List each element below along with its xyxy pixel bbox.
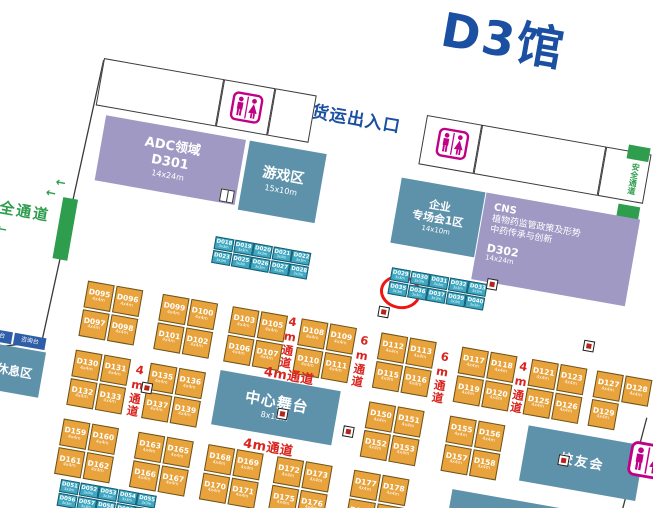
booth-D108: D1084x4m: [297, 318, 328, 349]
booth-D166: D1664x4m: [129, 460, 160, 491]
booth-D156: D1564x4m: [474, 421, 505, 452]
booth-D112: D1124x4m: [377, 332, 408, 363]
booth-group: D0994x4mD1004x4mD1014x4mD1024x4m: [153, 294, 219, 360]
booth-D132: D1324x4m: [66, 378, 97, 409]
booth-D117: D1174x4m: [458, 347, 489, 378]
booth-group: D1354x4mD1364x4mD1374x4mD1394x4m: [141, 363, 207, 429]
booth-D102: D1024x4m: [181, 327, 212, 358]
booth-D175: D1754x4m: [268, 484, 299, 508]
booth-id: D058: [97, 502, 115, 508]
booth-D123: D1234x4m: [556, 364, 587, 395]
room-top-small: [267, 88, 317, 143]
booth-D109: D1094x4m: [325, 323, 356, 354]
booth-D177: D1774x4m: [350, 470, 381, 501]
booth-D115: D1154x4m: [372, 360, 403, 391]
booth-D099: D0994x4m: [158, 294, 189, 325]
booth-D152: D1524x4m: [360, 429, 391, 460]
booth-D151: D1514x4m: [393, 406, 424, 437]
booth-group: D1504x4mD1514x4mD1524x4mD1534x4m: [360, 401, 426, 467]
booth-group: D1174x4mD1184x4mD1194x4mD1204x4m: [452, 347, 518, 413]
booth-group: D1214x4mD1234x4mD1254x4mD1264x4m: [522, 359, 588, 425]
booth-D160: D1604x4m: [87, 423, 118, 454]
booth-D116: D1164x4m: [400, 365, 431, 396]
booth-group: D1304x4mD1314x4mD1324x4mD1334x4m: [66, 350, 132, 416]
restroom-icon: [626, 439, 653, 481]
booth-D131: D1314x4m: [99, 355, 130, 386]
facility-icon: [582, 340, 595, 353]
booth-D129: D1294x4m: [588, 399, 619, 430]
booth-D139: D1394x4m: [169, 396, 200, 427]
booth-group: D1554x4mD1564x4mD1574x4mD1584x4m: [440, 416, 506, 482]
booth-D165: D1654x4m: [162, 437, 193, 468]
booth-D101: D1014x4m: [153, 322, 184, 353]
booth-D126: D1264x4m: [551, 392, 582, 423]
facility-icon: [377, 306, 390, 319]
booth-D158: D1584x4m: [469, 449, 500, 480]
booth-D162: D1624x4m: [82, 452, 113, 483]
direction-arrow-icon: ←: [45, 188, 56, 198]
booth-D130: D1304x4m: [71, 350, 102, 381]
booth-D171: D1714x4m: [227, 477, 258, 508]
booth-D155: D1554x4m: [446, 416, 477, 447]
booth-D137: D1374x4m: [141, 391, 172, 422]
restroom-icon: [434, 126, 471, 161]
booth-D157: D1574x4m: [441, 444, 472, 475]
booth-D125: D1254x4m: [523, 387, 554, 418]
facility-icon: [557, 454, 570, 467]
booth-D057: D0573x3m: [76, 496, 97, 508]
booth-D163: D1634x4m: [134, 432, 165, 463]
booth-D118: D1184x4m: [486, 352, 517, 383]
facility-icon: [141, 382, 154, 395]
booth-D120: D1204x4m: [481, 380, 512, 411]
booth-D119: D1194x4m: [453, 375, 484, 406]
booth-D121: D1214x4m: [528, 359, 559, 390]
booth-D127: D1274x4m: [593, 370, 624, 401]
booth-D128: D1284x4m: [621, 375, 652, 406]
booth-D055: D0553x3m: [136, 493, 157, 508]
booth-D161: D1614x4m: [54, 447, 85, 478]
booth-D170: D1704x4m: [199, 472, 230, 503]
booth-group: D1274x4mD1284x4mD1294x4m: [587, 370, 653, 436]
booth-D136: D1364x4m: [174, 368, 205, 399]
booth-D133: D1334x4m: [94, 383, 125, 414]
booth-D113: D1134x4m: [405, 337, 436, 368]
facility-icon: [486, 278, 499, 291]
booth-D103: D1034x4m: [228, 306, 259, 337]
booth-D172: D1724x4m: [273, 456, 304, 487]
booth-group: D0954x4mD0964x4mD0974x4mD0984x4m: [78, 281, 144, 347]
booth-D168: D1684x4m: [204, 444, 235, 475]
booth-D111: D1114x4m: [320, 351, 351, 382]
booth-D159: D1594x4m: [59, 419, 90, 450]
door-icon: [219, 188, 235, 203]
booth-D095: D0954x4m: [83, 281, 114, 312]
booth-group: D1594x4mD1604x4mD1614x4mD1624x4m: [54, 419, 120, 485]
facility-icon: [342, 425, 355, 438]
booth-group: D1634x4mD1654x4mD1664x4mD1674x4m: [129, 432, 195, 498]
booth-group: D1124x4mD1134x4mD1154x4mD1164x4m: [372, 332, 438, 398]
booth-group: D1684x4mD1694x4mD1704x4mD1714x4m: [199, 444, 265, 508]
booth-D096: D0964x4m: [112, 286, 143, 317]
zone-name: 校友会: [522, 445, 641, 481]
plan-canvas: D3馆 货运出入口 安全通道 安全通道 ← ← ← ← ADC领域 D301 1…: [0, 0, 653, 508]
booth-D173: D1734x4m: [301, 461, 332, 492]
zone-name: 休息区: [0, 359, 34, 382]
booth-D167: D1674x4m: [157, 465, 188, 496]
booth-D100: D1004x4m: [186, 299, 217, 330]
booth-group: D1724x4mD1734x4mD1754x4mD1764x4m: [268, 456, 334, 508]
booth-D056: D0563x3m: [57, 493, 78, 508]
booth-D150: D1504x4m: [365, 401, 396, 432]
zone-game: 游戏区 15x10m: [238, 141, 327, 223]
booth-D153: D1534x4m: [388, 434, 419, 465]
floor-plan-d3: D3馆 货运出入口 安全通道 安全通道 ← ← ← ← ADC领域 D301 1…: [0, 0, 653, 508]
booth-D097: D0974x4m: [78, 309, 109, 340]
booth-D106: D1064x4m: [223, 334, 254, 365]
booth-D098: D0984x4m: [107, 314, 138, 345]
booth-D178: D1784x4m: [378, 475, 409, 506]
booth-D176: D1764x4m: [296, 489, 327, 508]
facility-icon: [276, 408, 289, 421]
restroom-icon: [228, 90, 265, 125]
